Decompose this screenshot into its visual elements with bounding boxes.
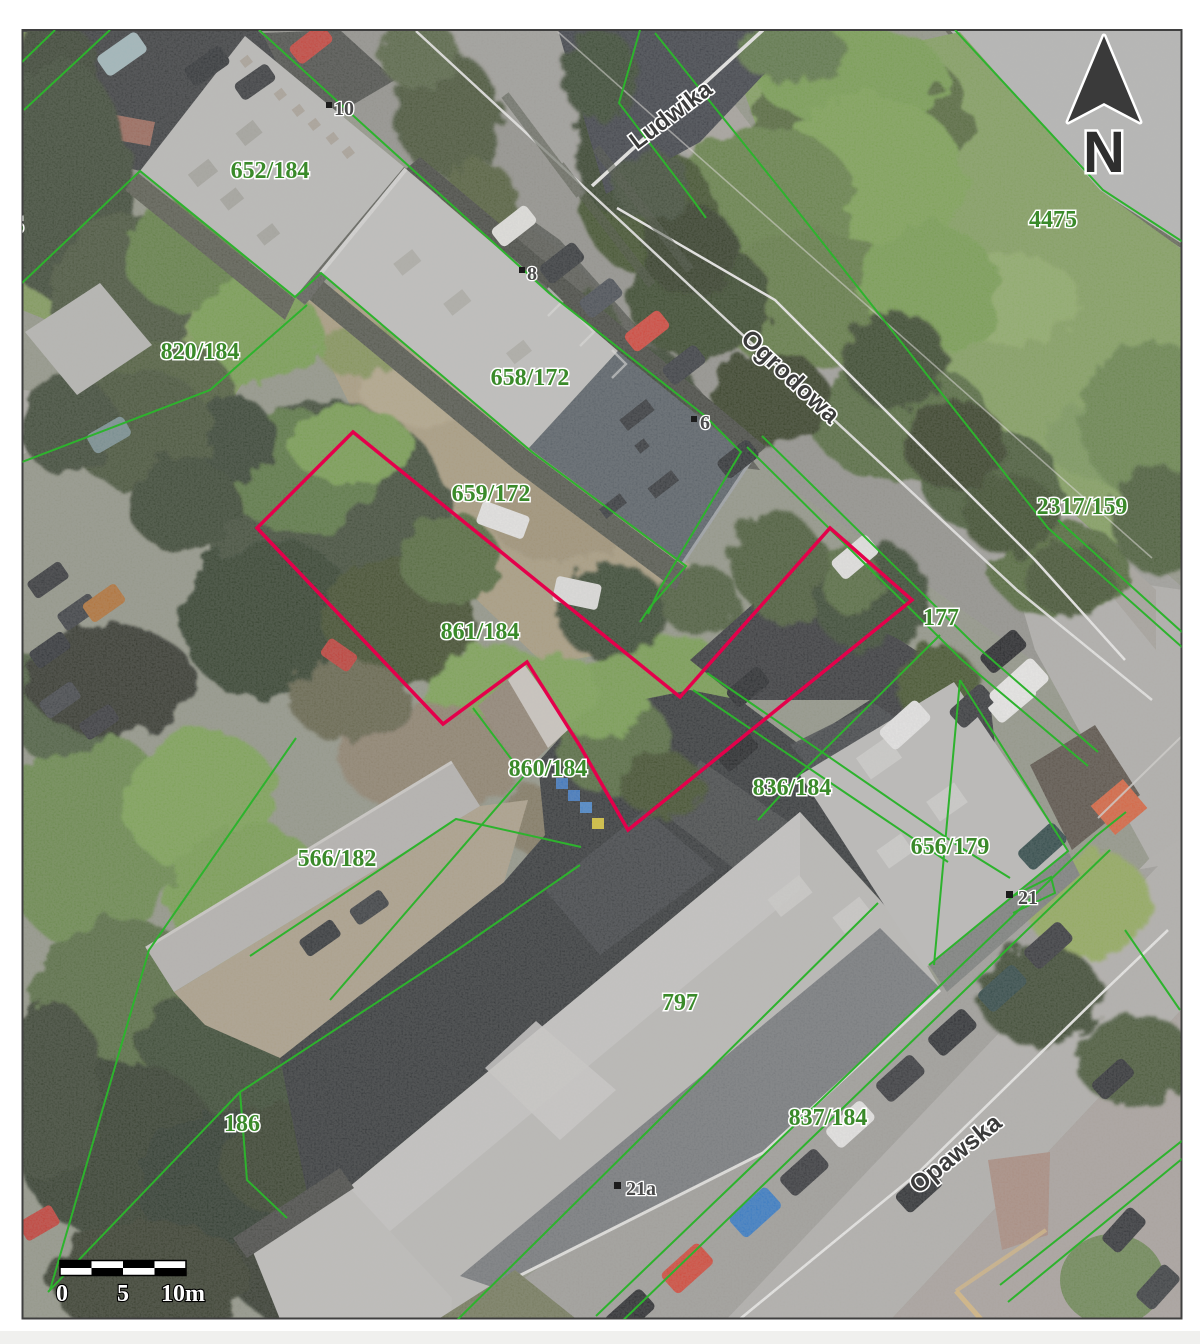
svg-text:21: 21: [1018, 887, 1038, 909]
svg-text:6: 6: [700, 412, 710, 434]
svg-text:0: 0: [56, 1281, 68, 1307]
svg-text:5: 5: [117, 1281, 129, 1307]
svg-text:10m: 10m: [161, 1281, 205, 1307]
svg-text:4475: 4475: [1029, 207, 1077, 233]
svg-text:177: 177: [923, 605, 959, 631]
svg-text:8: 8: [527, 263, 537, 285]
svg-text:652/184: 652/184: [231, 158, 310, 184]
svg-text:10: 10: [334, 98, 354, 120]
svg-text:658/172: 658/172: [491, 365, 570, 391]
svg-text:2317/159: 2317/159: [1037, 494, 1128, 520]
svg-text:N: N: [1083, 120, 1125, 185]
svg-text:837/184: 837/184: [789, 1105, 868, 1131]
svg-text:797: 797: [662, 990, 698, 1016]
svg-text:566/182: 566/182: [298, 846, 377, 872]
svg-text:861/184: 861/184: [441, 619, 520, 645]
svg-text:820/184: 820/184: [161, 339, 240, 365]
svg-text:836/184: 836/184: [753, 775, 832, 801]
svg-text:860/184: 860/184: [509, 756, 588, 782]
svg-text:21a: 21a: [626, 1178, 656, 1200]
svg-text:659/172: 659/172: [452, 481, 531, 507]
svg-text:186: 186: [224, 1111, 260, 1137]
svg-text:656/179: 656/179: [911, 834, 990, 860]
